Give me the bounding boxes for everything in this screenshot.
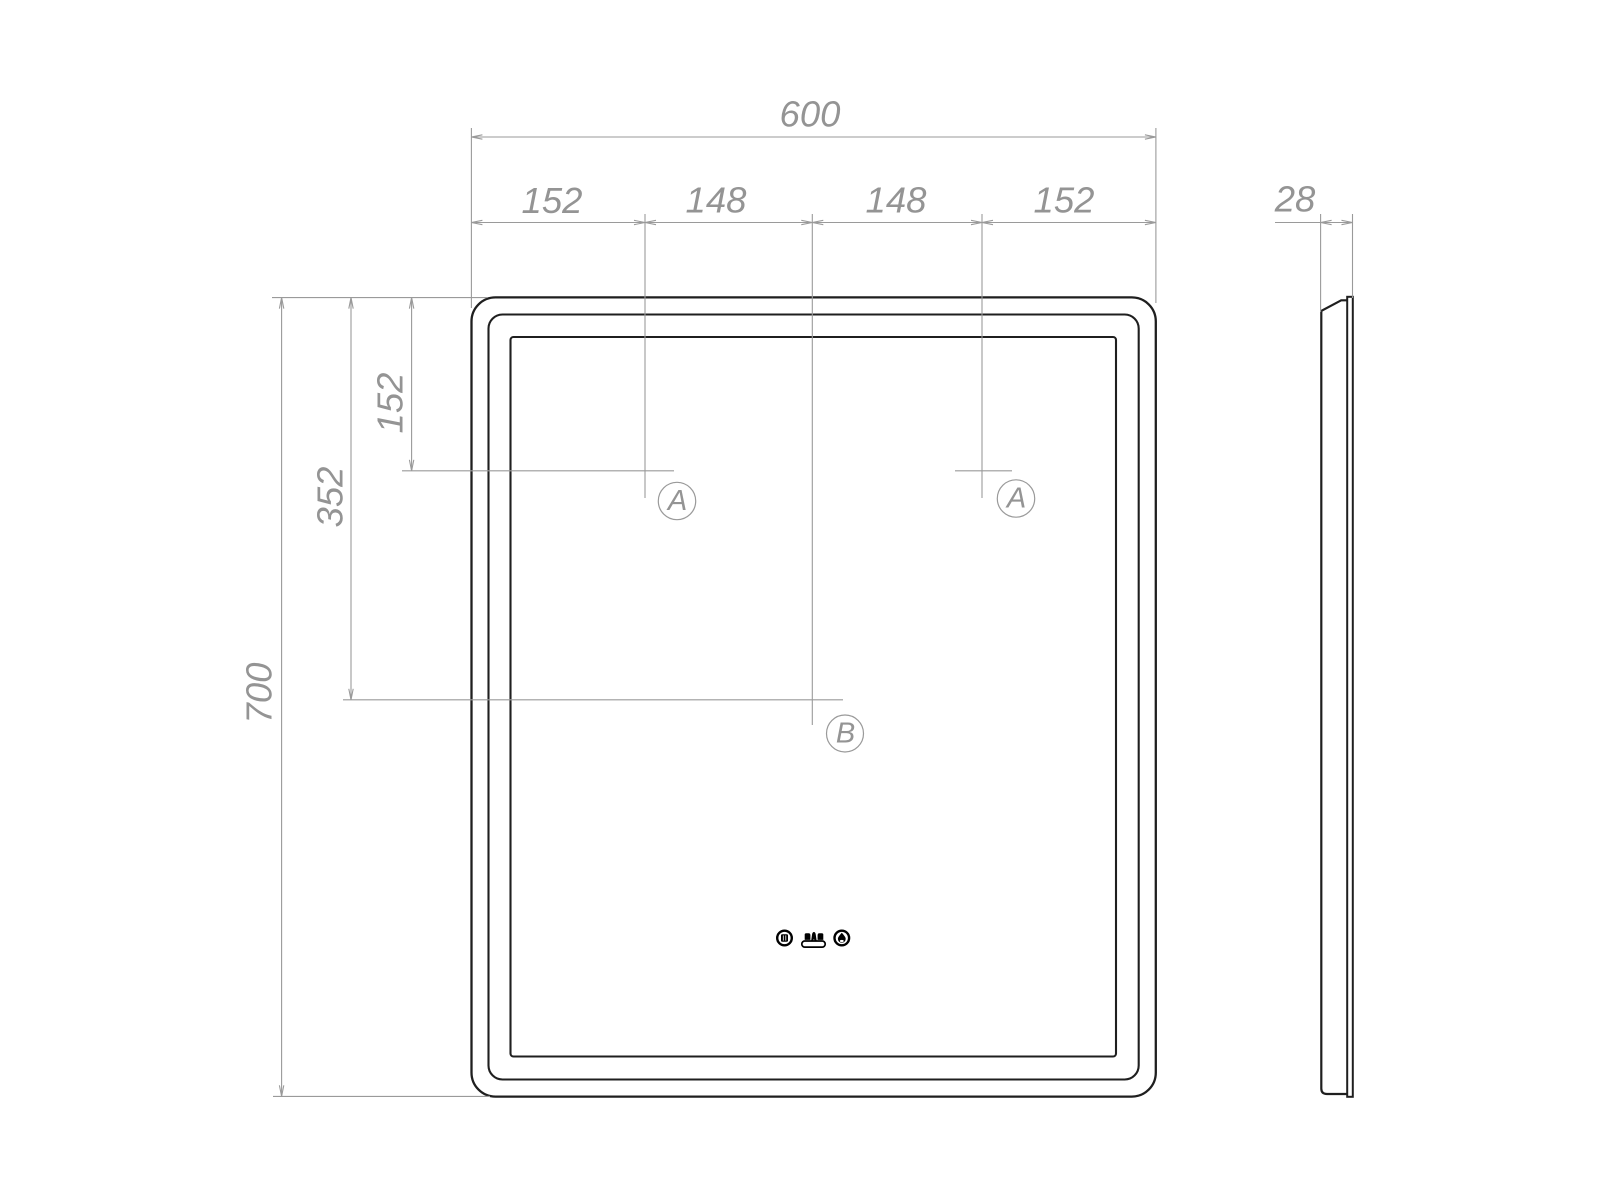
svg-text:148: 148 [866,180,928,221]
svg-text:B: B [836,718,855,750]
svg-text:28: 28 [1274,179,1316,220]
svg-text:148: 148 [686,180,748,221]
svg-text:A: A [1005,483,1026,515]
svg-text:152: 152 [370,373,411,434]
svg-text:A: A [666,485,687,517]
svg-text:352: 352 [310,467,351,528]
svg-text:152: 152 [1034,180,1095,221]
svg-text:152: 152 [522,180,583,221]
svg-text:600: 600 [780,94,841,135]
svg-text:700: 700 [239,663,280,724]
